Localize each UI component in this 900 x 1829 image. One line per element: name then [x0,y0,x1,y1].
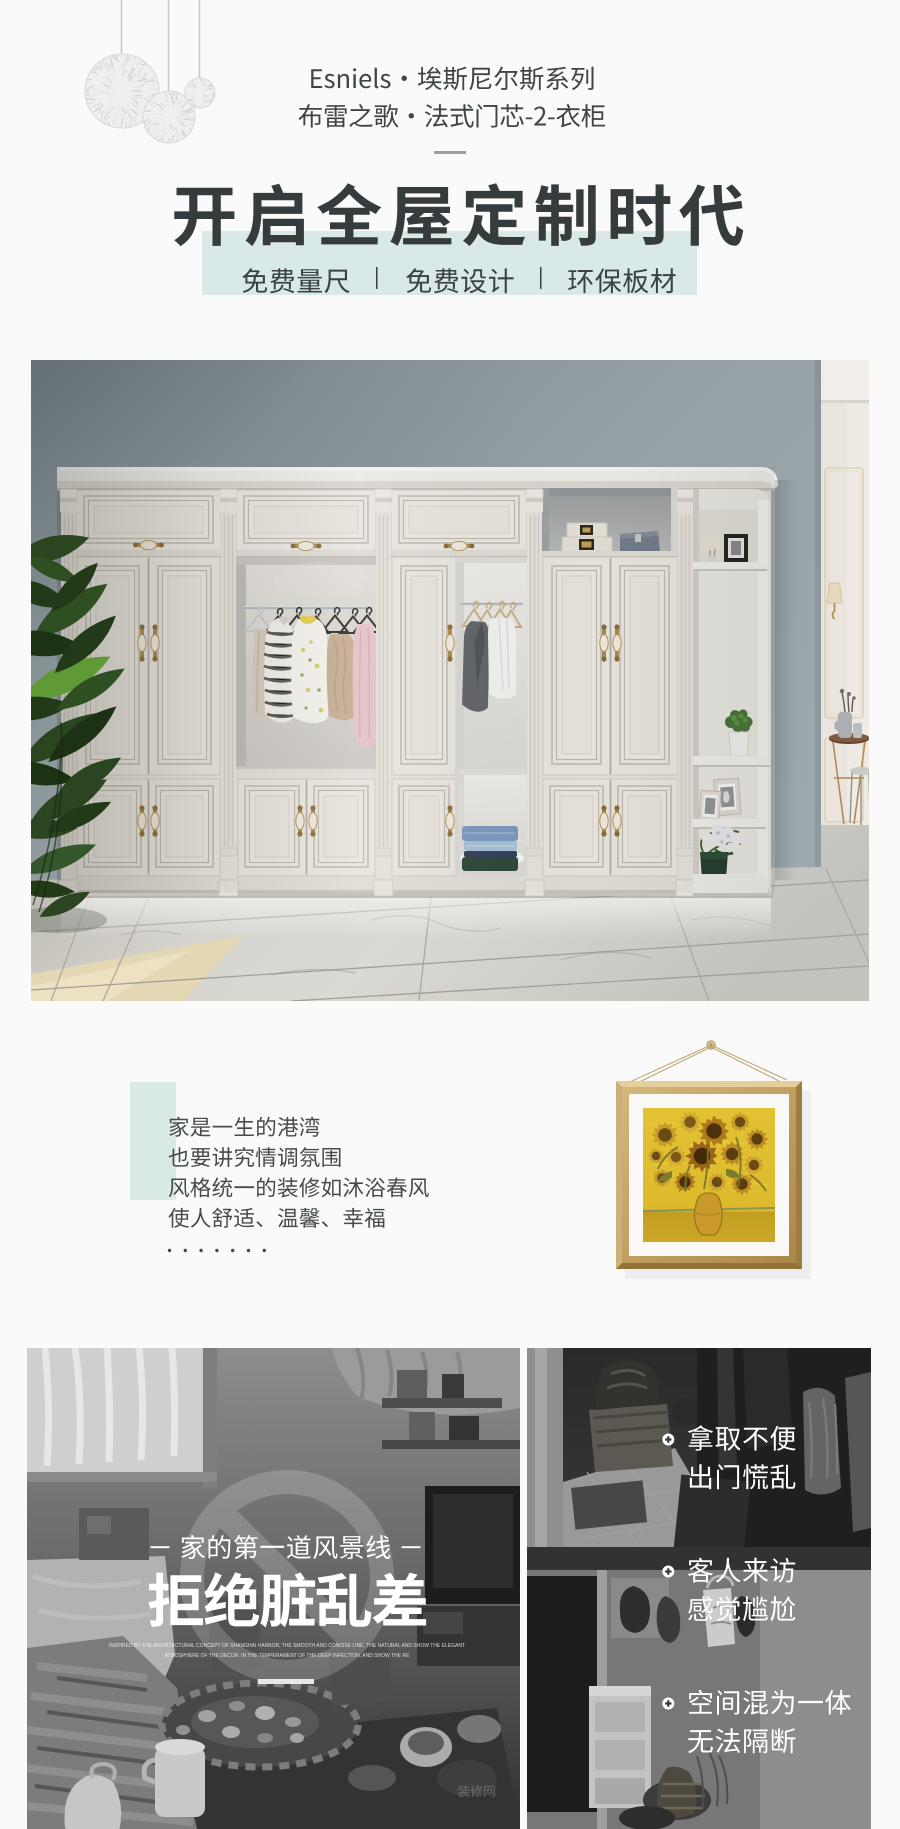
svg-text:INSPIRED BY THE ARCHITECTURAL: INSPIRED BY THE ARCHITECTURAL CONCEPT OF… [109,1643,465,1649]
svg-text:ATMOSPHERE OF THE DECOR. IN TH: ATMOSPHERE OF THE DECOR. IN THE TEMPERAM… [165,1653,411,1659]
